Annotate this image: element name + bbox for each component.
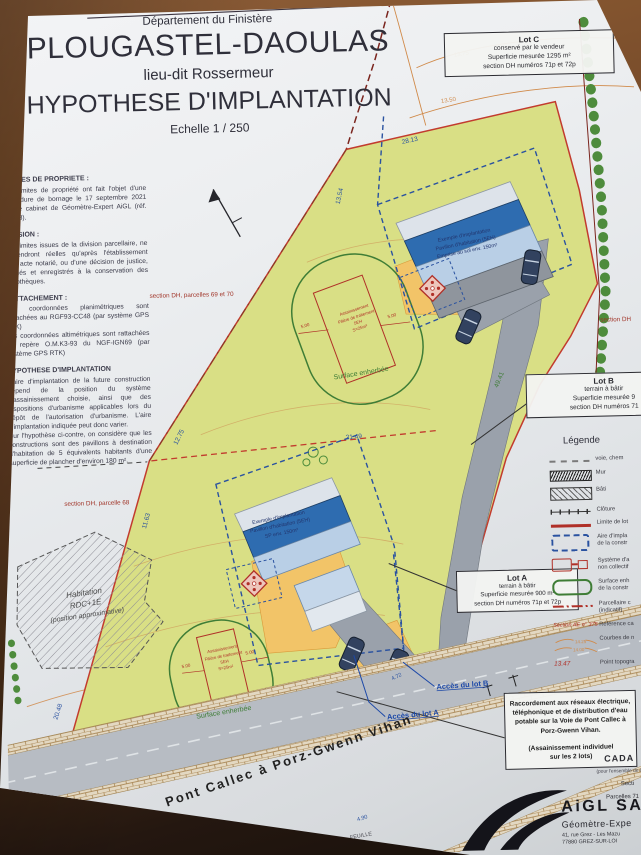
photo-background: section DH, parcelles 69 et 70 section D… bbox=[0, 0, 641, 855]
notes-column: Nota : LIMITES DE PROPRIETE : Les limite… bbox=[2, 156, 152, 469]
lot-b-box: Lot B terrain à bâtir Superficie mesurée… bbox=[525, 371, 641, 418]
svg-text:14.25: 14.25 bbox=[575, 639, 587, 644]
building-hatch-icon bbox=[550, 487, 592, 501]
contour-sample-icon: 14.25 14.00 bbox=[553, 636, 597, 655]
grass-area-icon bbox=[552, 579, 592, 596]
lot-c-box: Lot C conservé par le vendeur Superficie… bbox=[444, 29, 615, 77]
section-label: section DH, parcelles 69 et 70 bbox=[150, 291, 235, 300]
north-arrow-icon bbox=[208, 189, 242, 238]
svg-text:14.00: 14.00 bbox=[573, 647, 585, 652]
note-body: L'aire d'implantation de la future const… bbox=[7, 375, 152, 469]
plan-title: HYPOTHESE D'IMPLANTATION bbox=[0, 83, 419, 122]
cadastre-title: CADA bbox=[604, 753, 634, 764]
cadastre-subtitle: (pour l'ensemble de la p bbox=[596, 769, 641, 775]
title-block: Département du Finistère PLOUGASTEL-DAOU… bbox=[0, 10, 420, 140]
section-label: section DH bbox=[600, 316, 631, 324]
section-label: section DH, parcelle 68 bbox=[64, 499, 130, 507]
nota-label: Nota : bbox=[2, 156, 145, 169]
legend-title: Légende bbox=[563, 433, 641, 447]
septic-legend-icon bbox=[552, 558, 588, 572]
firm-address-2: 77880 GREZ-SUR-LOI bbox=[562, 838, 617, 845]
legend: Légende voie, chem Mur Bâti Clôture Limi… bbox=[549, 433, 641, 675]
note-body: Les coordonnées planimétriques sont ratt… bbox=[6, 302, 150, 360]
cadastre-section: Secti bbox=[621, 781, 634, 787]
sheet-content: section DH, parcelles 69 et 70 section D… bbox=[0, 0, 641, 855]
implantation-area-icon bbox=[551, 534, 589, 552]
raccordement-body: Raccordement aux réseaux électrique, tél… bbox=[509, 697, 632, 737]
svg-text:4.90: 4.90 bbox=[356, 814, 368, 823]
lot-limit-line-icon bbox=[551, 524, 591, 527]
commune-title: PLOUGASTEL-DAOULAS bbox=[0, 24, 418, 68]
svg-text:20.48: 20.48 bbox=[52, 703, 64, 721]
road-line-icon bbox=[549, 460, 589, 463]
topo-point-sample: 13.47 bbox=[554, 661, 570, 668]
fence-line-icon bbox=[551, 509, 591, 515]
note-body: Les limites de propriété ont fait l'obje… bbox=[3, 184, 147, 223]
svg-text:13.50: 13.50 bbox=[441, 97, 457, 105]
plan-sheet: section DH, parcelles 69 et 70 section D… bbox=[0, 0, 641, 855]
cadastral-line-icon bbox=[553, 605, 593, 608]
note-body: Les limites issues de la division parcel… bbox=[4, 238, 148, 286]
aigl-logo bbox=[459, 784, 575, 852]
wall-hatch-icon bbox=[550, 470, 592, 482]
firm-role: Géomètre-Expe bbox=[562, 818, 632, 830]
cadastral-ref-sample: Section AE n° 375 bbox=[553, 622, 598, 629]
firm-name: AiGL SA bbox=[561, 797, 641, 817]
